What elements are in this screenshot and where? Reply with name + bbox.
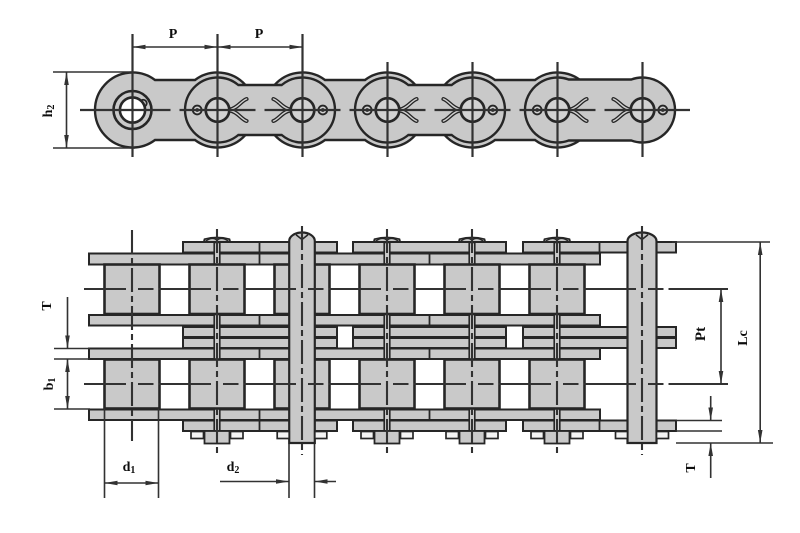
svg-text:P: P [255,27,264,42]
svg-text:Lc: Lc [736,330,751,346]
svg-text:T: T [40,301,55,311]
svg-text:T: T [684,463,699,473]
svg-text:Pt: Pt [693,327,709,341]
svg-text:P: P [169,27,178,42]
